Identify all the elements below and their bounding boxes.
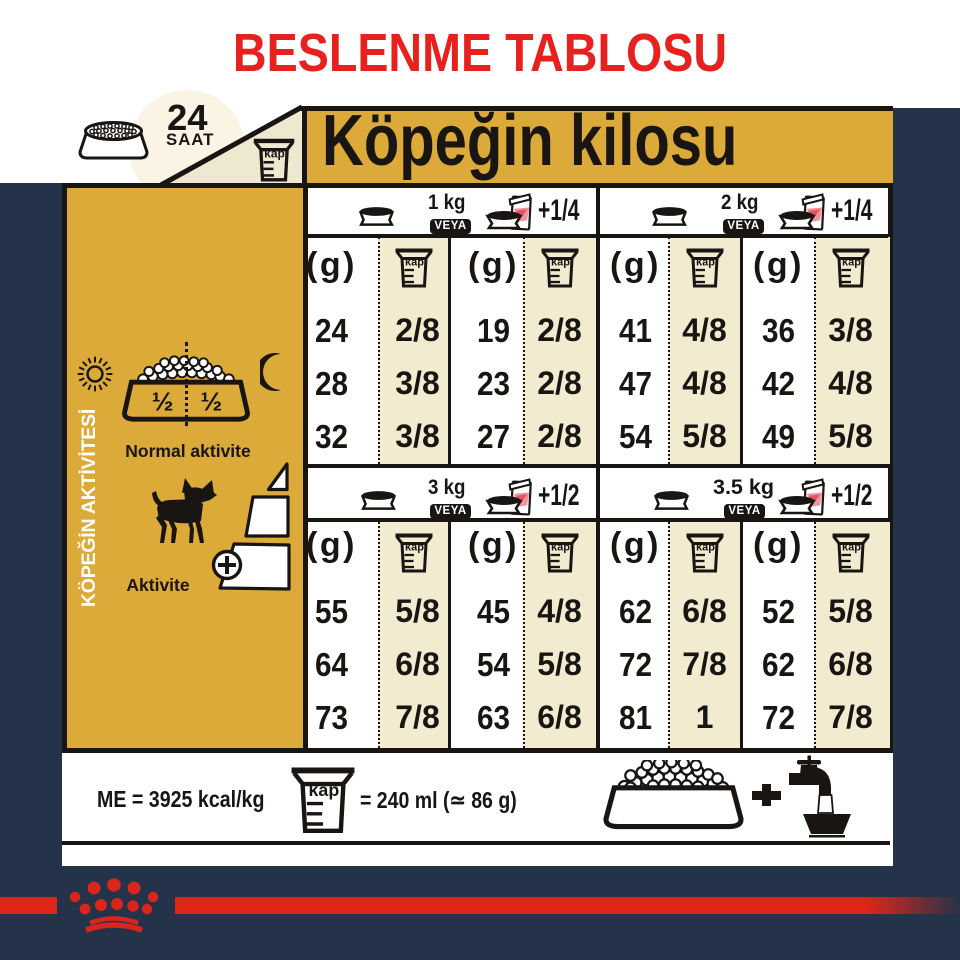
svg-text:½: ½ xyxy=(200,386,222,416)
svg-text:kap: kap xyxy=(308,780,339,800)
svg-text:½: ½ xyxy=(152,386,174,416)
